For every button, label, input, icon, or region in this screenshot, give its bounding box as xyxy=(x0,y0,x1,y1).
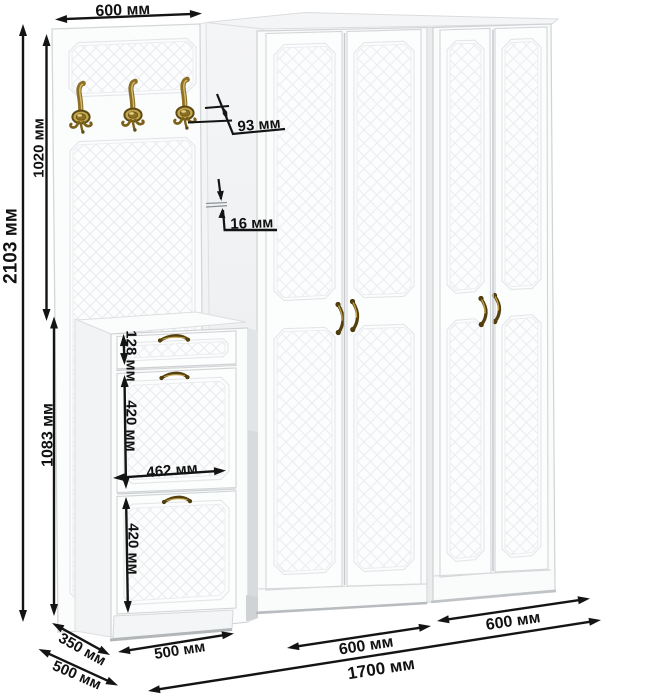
svg-text:16 мм: 16 мм xyxy=(230,214,274,232)
svg-text:128 мм: 128 мм xyxy=(123,330,140,381)
svg-text:600 мм: 600 мм xyxy=(95,1,150,20)
svg-text:420 мм: 420 мм xyxy=(123,400,140,451)
svg-text:1083 мм: 1083 мм xyxy=(40,403,57,467)
svg-text:2103 мм: 2103 мм xyxy=(1,208,22,284)
svg-text:1020 мм: 1020 мм xyxy=(31,118,48,178)
svg-text:420 мм: 420 мм xyxy=(125,523,142,574)
